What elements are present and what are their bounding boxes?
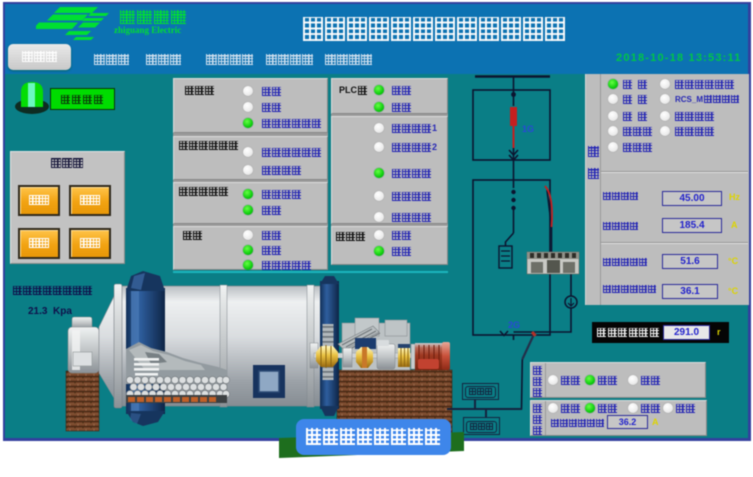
svg-text:1G: 1G (522, 124, 534, 134)
svg-text:2G: 2G (508, 320, 520, 330)
